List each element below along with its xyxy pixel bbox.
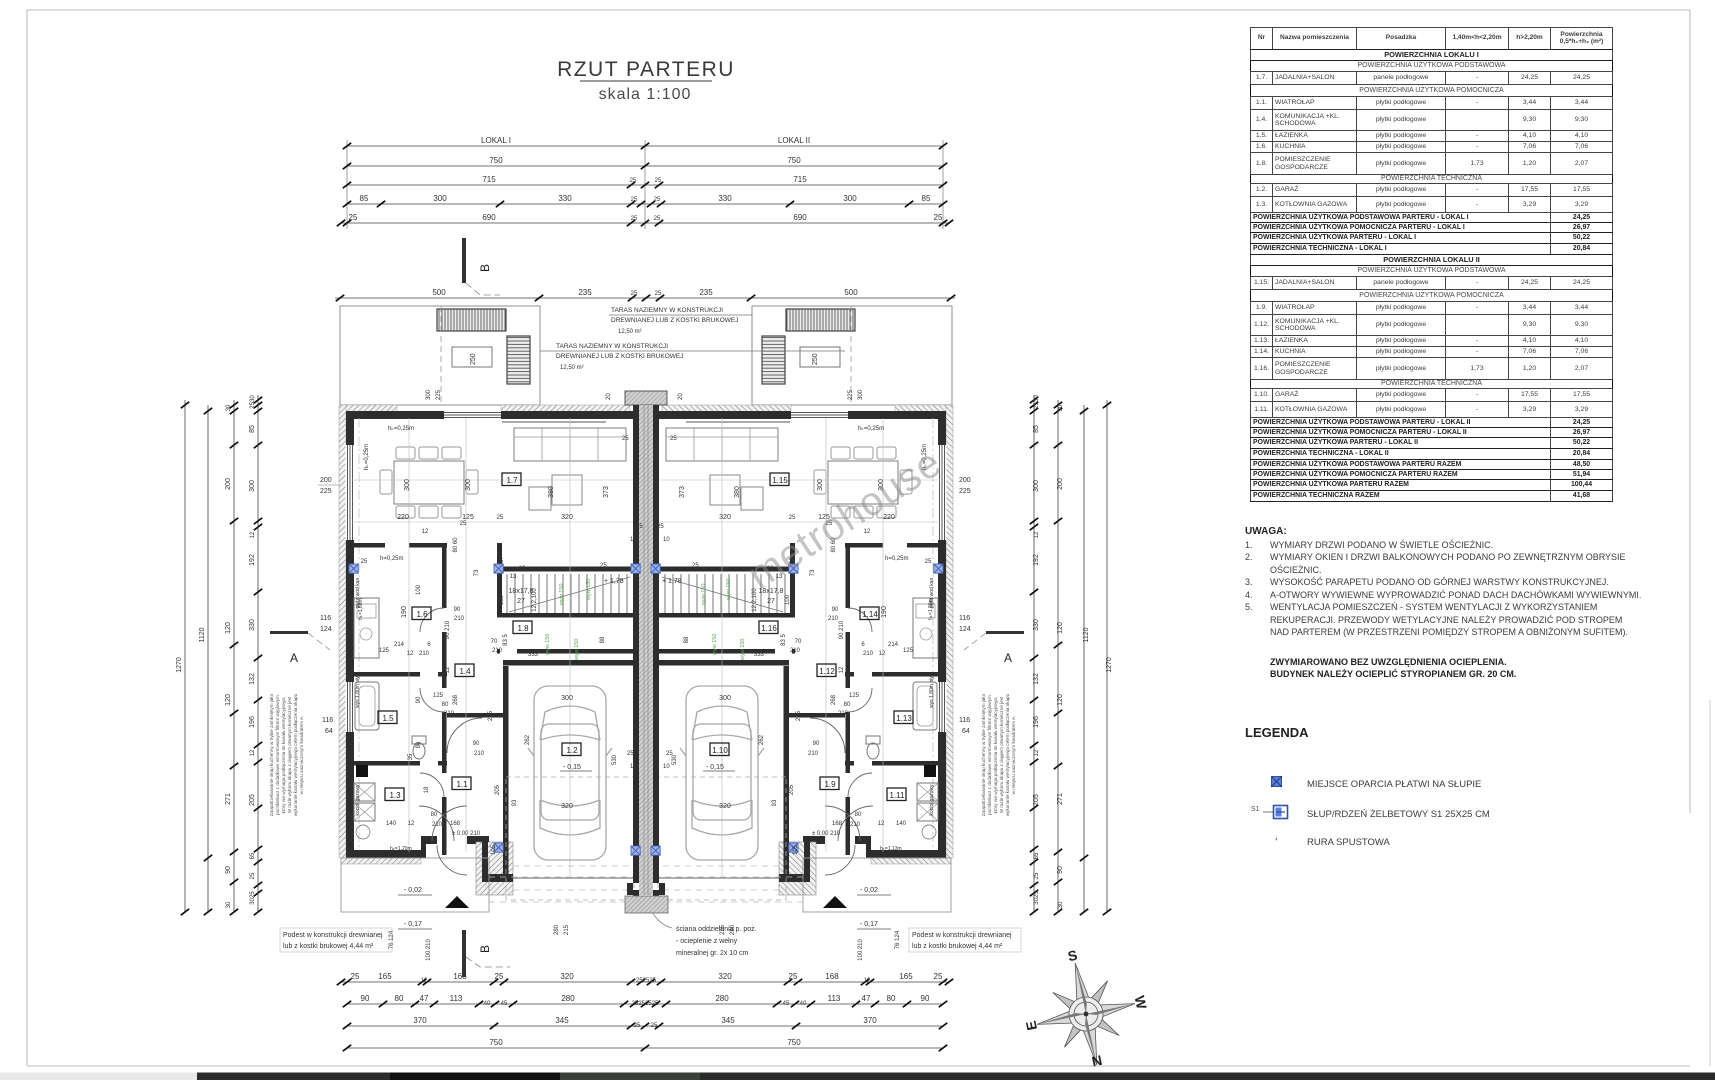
svg-text:27: 27 bbox=[767, 598, 775, 605]
svg-text:W: W bbox=[1132, 994, 1151, 1011]
svg-text:1.1: 1.1 bbox=[456, 780, 468, 789]
svg-text:1.6: 1.6 bbox=[416, 610, 428, 619]
svg-text:1.7: 1.7 bbox=[506, 476, 518, 485]
svg-text:205: 205 bbox=[495, 784, 501, 795]
svg-text:12: 12 bbox=[879, 651, 886, 657]
svg-text:RZUT PARTERU: RZUT PARTERU bbox=[557, 58, 735, 81]
svg-text:140: 140 bbox=[896, 821, 907, 827]
svg-text:25: 25 bbox=[497, 559, 504, 565]
svg-text:90: 90 bbox=[473, 741, 480, 747]
svg-text:25: 25 bbox=[497, 515, 504, 521]
svg-text:12: 12 bbox=[421, 978, 428, 984]
svg-text:380: 380 bbox=[548, 486, 555, 498]
svg-text:90: 90 bbox=[361, 994, 370, 1003]
svg-text:100: 100 bbox=[785, 594, 791, 605]
svg-text:40: 40 bbox=[800, 1001, 807, 1007]
svg-text:715: 715 bbox=[793, 175, 807, 184]
svg-text:12: 12 bbox=[408, 821, 415, 827]
svg-text:330: 330 bbox=[249, 619, 256, 631]
svg-text:w miejscu zaznaczonym kwadrate: w miejscu zaznaczonym kwadratem A. bbox=[1011, 716, 1016, 795]
svg-text:125: 125 bbox=[903, 648, 914, 654]
svg-text:80: 80 bbox=[395, 994, 404, 1003]
svg-text:25: 25 bbox=[460, 521, 467, 527]
svg-text:73: 73 bbox=[810, 569, 816, 576]
svg-text:210: 210 bbox=[828, 616, 839, 622]
svg-text:DREWNIANEJ LUB Z KOSTKI BRUKOW: DREWNIANEJ LUB Z KOSTKI BRUKOWEJ bbox=[556, 353, 684, 360]
svg-text:25: 25 bbox=[692, 563, 699, 569]
svg-text:+ 1,78: + 1,78 bbox=[604, 578, 624, 585]
svg-text:330: 330 bbox=[1033, 619, 1040, 631]
svg-text:300: 300 bbox=[817, 479, 824, 491]
svg-text:116: 116 bbox=[322, 717, 333, 724]
svg-text:90 210: 90 210 bbox=[445, 620, 451, 639]
svg-text:25: 25 bbox=[630, 178, 637, 184]
svg-text:116: 116 bbox=[959, 615, 970, 622]
svg-text:45: 45 bbox=[783, 1001, 790, 1007]
svg-text:85: 85 bbox=[360, 194, 369, 203]
svg-text:105: 105 bbox=[793, 844, 799, 855]
svg-text:25: 25 bbox=[651, 1023, 658, 1029]
svg-text:12 2,100: 12 2,100 bbox=[532, 588, 538, 612]
svg-text:47: 47 bbox=[862, 994, 871, 1003]
svg-text:który nie wymaga podłączenia d: który nie wymaga podłączenia do kanału w… bbox=[281, 697, 286, 814]
svg-text:210: 210 bbox=[850, 822, 861, 828]
svg-text:80: 80 bbox=[855, 812, 862, 818]
svg-text:750: 750 bbox=[787, 156, 801, 165]
svg-text:250: 250 bbox=[812, 353, 819, 365]
svg-text:90: 90 bbox=[454, 607, 461, 613]
svg-text:85: 85 bbox=[922, 194, 931, 203]
svg-text:330: 330 bbox=[558, 194, 572, 203]
svg-text:125: 125 bbox=[379, 648, 390, 654]
svg-text:90: 90 bbox=[416, 696, 422, 703]
svg-text:235: 235 bbox=[578, 288, 592, 297]
svg-text:wyw 150: wyw 150 bbox=[545, 634, 551, 656]
svg-text:12: 12 bbox=[1034, 749, 1040, 756]
svg-text:88: 88 bbox=[600, 636, 606, 643]
svg-text:45: 45 bbox=[501, 1001, 508, 1007]
svg-text:wys 1,80m płyta: wys 1,80m płyta bbox=[355, 672, 361, 708]
svg-text:47: 47 bbox=[420, 994, 429, 1003]
svg-text:3025: 3025 bbox=[250, 891, 256, 905]
svg-text:210: 210 bbox=[474, 751, 485, 757]
svg-text:6: 6 bbox=[861, 642, 865, 648]
svg-text:wyw 150: wyw 150 bbox=[726, 579, 732, 601]
svg-text:18: 18 bbox=[424, 786, 430, 793]
svg-text:100: 100 bbox=[416, 584, 422, 595]
svg-text:85: 85 bbox=[249, 425, 256, 433]
svg-text:370: 370 bbox=[863, 1016, 877, 1025]
svg-text:pochłaniacz z dodatkowo wmonto: pochłaniacz z dodatkowo wmontowanym filt… bbox=[987, 695, 992, 815]
svg-text:262: 262 bbox=[759, 734, 765, 745]
svg-text:30: 30 bbox=[1058, 404, 1064, 411]
svg-text:1.16: 1.16 bbox=[761, 624, 777, 633]
svg-text:10: 10 bbox=[630, 537, 637, 543]
svg-text:210: 210 bbox=[838, 711, 849, 717]
svg-text:80 60: 80 60 bbox=[453, 537, 459, 553]
svg-text:40: 40 bbox=[484, 1001, 491, 1007]
svg-text:380: 380 bbox=[734, 486, 741, 498]
svg-text:27: 27 bbox=[517, 598, 525, 605]
svg-text:300: 300 bbox=[426, 389, 432, 400]
svg-text:25: 25 bbox=[634, 1023, 641, 1029]
svg-text:225: 225 bbox=[959, 488, 971, 495]
svg-text:190: 190 bbox=[401, 606, 408, 618]
svg-text:- 0,02: - 0,02 bbox=[404, 887, 422, 894]
svg-text:1.3: 1.3 bbox=[389, 791, 401, 800]
svg-text:65: 65 bbox=[250, 852, 256, 859]
svg-text:120: 120 bbox=[1057, 622, 1064, 634]
svg-text:214: 214 bbox=[394, 642, 405, 648]
svg-text:220: 220 bbox=[397, 514, 409, 521]
svg-text:B: B bbox=[478, 945, 492, 953]
svg-text:345: 345 bbox=[555, 1016, 569, 1025]
svg-text:E: E bbox=[1022, 1019, 1040, 1031]
svg-text:± 0,00 210: ± 0,00 210 bbox=[812, 831, 841, 837]
svg-text:80: 80 bbox=[431, 812, 438, 818]
svg-text:25: 25 bbox=[666, 751, 673, 757]
svg-text:64: 64 bbox=[962, 728, 970, 735]
svg-text:+ 1,78: + 1,78 bbox=[662, 578, 682, 585]
svg-text:70: 70 bbox=[795, 639, 802, 645]
svg-text:500: 500 bbox=[432, 288, 446, 297]
svg-text:25: 25 bbox=[657, 524, 664, 530]
svg-text:100: 100 bbox=[499, 594, 505, 605]
svg-text:690: 690 bbox=[793, 213, 807, 222]
svg-text:93: 93 bbox=[772, 799, 778, 806]
svg-text:2530: 2530 bbox=[1034, 395, 1040, 409]
svg-text:Podest w konstrukcji drewniane: Podest w konstrukcji drewnianej bbox=[912, 932, 1012, 939]
svg-text:132: 132 bbox=[1033, 673, 1040, 685]
svg-text:20: 20 bbox=[678, 393, 684, 400]
svg-text:214: 214 bbox=[888, 642, 899, 648]
svg-text:- ocieplenie z wełny: - ocieplenie z wełny bbox=[676, 938, 738, 945]
svg-text:13: 13 bbox=[510, 574, 517, 580]
svg-text:1.13: 1.13 bbox=[896, 714, 912, 723]
svg-text:70: 70 bbox=[491, 639, 498, 645]
svg-text:hₖ=1,13m: hₖ=1,13m bbox=[880, 846, 902, 852]
svg-text:25: 25 bbox=[655, 178, 662, 184]
svg-text:płyta wod kan: płyta wod kan bbox=[929, 577, 935, 608]
svg-text:64: 64 bbox=[325, 728, 333, 735]
svg-text:200: 200 bbox=[225, 478, 232, 490]
svg-text:113: 113 bbox=[450, 994, 463, 1003]
svg-text:25: 25 bbox=[789, 515, 796, 521]
svg-text:N: N bbox=[1090, 1052, 1103, 1070]
svg-text:280: 280 bbox=[561, 994, 575, 1003]
svg-text:lub z kostki brukowej 4,44 m²: lub z kostki brukowej 4,44 m² bbox=[283, 943, 374, 950]
svg-text:hₖ=0,25m: hₖ=0,25m bbox=[364, 444, 370, 470]
svg-text:100 210: 100 210 bbox=[426, 939, 432, 961]
svg-text:12 2,100: 12 2,100 bbox=[752, 588, 758, 612]
svg-text:83 5: 83 5 bbox=[503, 634, 509, 646]
svg-text:530: 530 bbox=[672, 754, 678, 765]
svg-text:25: 25 bbox=[636, 524, 643, 530]
svg-text:73: 73 bbox=[474, 569, 480, 576]
svg-text:320: 320 bbox=[561, 514, 573, 521]
svg-text:płyta wod kan: płyta wod kan bbox=[355, 577, 361, 608]
svg-text:76 124: 76 124 bbox=[895, 930, 901, 949]
svg-text:373: 373 bbox=[679, 486, 686, 498]
svg-text:320: 320 bbox=[719, 514, 731, 521]
svg-text:90: 90 bbox=[832, 607, 839, 613]
svg-text:25: 25 bbox=[934, 972, 943, 981]
svg-text:wykonanie kanału wentylacyjneg: wykonanie kanału wentylacyjnego celem po… bbox=[293, 693, 298, 816]
svg-text:120: 120 bbox=[225, 622, 232, 634]
svg-text:1.5: 1.5 bbox=[382, 714, 394, 723]
svg-text:1.8: 1.8 bbox=[517, 624, 529, 633]
svg-text:205: 205 bbox=[796, 710, 802, 721]
svg-text:6: 6 bbox=[427, 642, 431, 648]
svg-text:ściana oddzielenia p. poż.: ściana oddzielenia p. poż. bbox=[676, 926, 757, 933]
svg-text:30: 30 bbox=[226, 901, 232, 908]
svg-text:120: 120 bbox=[225, 694, 232, 706]
svg-text:1270: 1270 bbox=[1106, 657, 1113, 673]
svg-text:333: 333 bbox=[528, 652, 539, 658]
svg-text:DREWNIANEJ LUB Z KOSTKI BRUKOW: DREWNIANEJ LUB Z KOSTKI BRUKOWEJ bbox=[611, 317, 739, 324]
svg-text:90: 90 bbox=[225, 866, 232, 874]
svg-text:25: 25 bbox=[495, 972, 504, 981]
svg-text:wyw 150: wyw 150 bbox=[701, 584, 707, 606]
svg-text:1270: 1270 bbox=[176, 657, 183, 673]
svg-text:200: 200 bbox=[959, 477, 971, 484]
svg-text:300: 300 bbox=[561, 695, 573, 702]
svg-text:210: 210 bbox=[444, 711, 455, 717]
svg-text:Zaopatrzebowanie okap kuchenny: Zaopatrzebowanie okap kuchenny w trybie … bbox=[269, 693, 274, 816]
svg-text:LOKAL I: LOKAL I bbox=[481, 136, 511, 145]
svg-text:215: 215 bbox=[564, 924, 570, 935]
svg-text:1120: 1120 bbox=[1083, 627, 1090, 642]
svg-text:- 0,17: - 0,17 bbox=[860, 921, 878, 928]
svg-text:pochłaniacz z dodatkowo wmonto: pochłaniacz z dodatkowo wmontowanym filt… bbox=[275, 695, 280, 815]
svg-text:Podest w konstrukcji drewniane: Podest w konstrukcji drewnianej bbox=[283, 932, 383, 939]
svg-text:300: 300 bbox=[465, 479, 472, 491]
svg-text:300: 300 bbox=[249, 480, 256, 492]
svg-text:12: 12 bbox=[250, 749, 256, 756]
svg-text:12: 12 bbox=[878, 821, 885, 827]
svg-text:wyw 150: wyw 150 bbox=[740, 639, 746, 661]
svg-text:530: 530 bbox=[612, 754, 618, 765]
svg-text:3025: 3025 bbox=[1034, 891, 1040, 905]
svg-text:TARAS NAZIEMNY W KONSTRUKCJI: TARAS NAZIEMNY W KONSTRUKCJI bbox=[556, 343, 668, 350]
svg-text:25: 25 bbox=[925, 559, 932, 565]
svg-text:A: A bbox=[290, 651, 298, 665]
svg-text:200: 200 bbox=[1057, 478, 1064, 490]
svg-text:168: 168 bbox=[453, 972, 467, 981]
svg-text:210: 210 bbox=[419, 651, 430, 657]
svg-text:25252525: 25252525 bbox=[632, 1001, 659, 1007]
svg-text:18x17,8: 18x17,8 bbox=[509, 588, 534, 595]
svg-text:25: 25 bbox=[631, 216, 638, 222]
svg-text:25: 25 bbox=[627, 751, 634, 757]
svg-text:10: 10 bbox=[663, 764, 670, 770]
svg-text:300: 300 bbox=[433, 194, 447, 203]
svg-text:165: 165 bbox=[899, 972, 913, 981]
svg-text:12: 12 bbox=[1034, 531, 1040, 538]
svg-text:12: 12 bbox=[839, 666, 845, 673]
svg-text:80: 80 bbox=[416, 741, 422, 748]
svg-text:168: 168 bbox=[450, 821, 461, 827]
svg-text:196: 196 bbox=[1033, 716, 1040, 728]
svg-text:165: 165 bbox=[378, 972, 392, 981]
svg-text:25: 25 bbox=[600, 563, 607, 569]
svg-text:h=0,25m: h=0,25m bbox=[885, 556, 909, 562]
svg-text:90: 90 bbox=[813, 741, 820, 747]
svg-text:mineralnej gr. 2x 10 cm: mineralnej gr. 2x 10 cm bbox=[676, 950, 749, 957]
svg-text:116: 116 bbox=[320, 615, 331, 622]
svg-text:268: 268 bbox=[453, 694, 459, 705]
svg-text:S: S bbox=[1066, 947, 1078, 965]
svg-text:25: 25 bbox=[622, 436, 629, 442]
svg-text:113: 113 bbox=[828, 994, 841, 1003]
svg-text:25: 25 bbox=[631, 291, 638, 297]
svg-text:Zaopatrzebowanie okap kuchenny: Zaopatrzebowanie okap kuchenny w trybie … bbox=[981, 693, 986, 816]
svg-text:210: 210 bbox=[790, 648, 801, 654]
svg-text:25: 25 bbox=[351, 972, 360, 981]
svg-text:90: 90 bbox=[921, 994, 930, 1003]
svg-text:12: 12 bbox=[864, 978, 871, 984]
svg-text:± 0,00 210: ± 0,00 210 bbox=[452, 831, 481, 837]
svg-text:192: 192 bbox=[249, 554, 256, 566]
svg-text:30: 30 bbox=[226, 404, 232, 411]
svg-text:320: 320 bbox=[719, 803, 731, 810]
svg-text:metrohouse: metrohouse bbox=[740, 440, 950, 597]
svg-text:skala 1:100: skala 1:100 bbox=[599, 86, 692, 103]
svg-text:1.9: 1.9 bbox=[824, 780, 836, 789]
svg-text:168: 168 bbox=[825, 972, 839, 981]
svg-text:25: 25 bbox=[654, 216, 661, 222]
svg-text:205: 205 bbox=[249, 794, 256, 806]
svg-text:280: 280 bbox=[715, 994, 729, 1003]
svg-text:200: 200 bbox=[320, 477, 332, 484]
svg-text:wyw 150: wyw 150 bbox=[559, 584, 565, 606]
svg-text:12: 12 bbox=[250, 531, 256, 538]
svg-text:205: 205 bbox=[1033, 794, 1040, 806]
svg-text:300: 300 bbox=[404, 479, 411, 491]
svg-text:12,50 m²: 12,50 m² bbox=[560, 365, 584, 371]
svg-text:20: 20 bbox=[606, 393, 612, 400]
svg-text:10: 10 bbox=[630, 764, 637, 770]
svg-text:12: 12 bbox=[422, 529, 429, 535]
svg-text:lub z kostki brukowej 4,44 m²: lub z kostki brukowej 4,44 m² bbox=[912, 943, 1003, 950]
svg-text:A: A bbox=[1004, 651, 1012, 665]
svg-text:715: 715 bbox=[482, 175, 496, 184]
svg-text:124: 124 bbox=[959, 626, 971, 633]
svg-text:116: 116 bbox=[959, 717, 970, 724]
svg-text:- 0,17: - 0,17 bbox=[404, 921, 422, 928]
svg-text:140: 140 bbox=[386, 821, 397, 827]
svg-text:1.12: 1.12 bbox=[819, 667, 835, 676]
svg-text:225: 225 bbox=[848, 389, 854, 400]
svg-text:wykonanie kanału wentylacyjneg: wykonanie kanału wentylacyjnego celem po… bbox=[1005, 693, 1010, 816]
svg-text:1.2: 1.2 bbox=[566, 746, 578, 755]
svg-text:wyw 150: wyw 150 bbox=[712, 634, 718, 656]
svg-text:25: 25 bbox=[361, 559, 368, 565]
svg-text:wys 1,80m płyta: wys 1,80m płyta bbox=[929, 672, 935, 708]
svg-text:125: 125 bbox=[849, 693, 860, 699]
svg-text:25: 25 bbox=[655, 291, 662, 297]
svg-text:205: 205 bbox=[488, 710, 494, 721]
svg-text:125: 125 bbox=[433, 693, 444, 699]
svg-text:750: 750 bbox=[489, 1038, 503, 1047]
svg-text:1.14: 1.14 bbox=[862, 610, 878, 619]
svg-text:25: 25 bbox=[934, 213, 943, 222]
svg-text:1.15: 1.15 bbox=[772, 476, 788, 485]
svg-text:320: 320 bbox=[718, 972, 732, 981]
svg-text:300: 300 bbox=[858, 389, 864, 400]
svg-text:kocioł gazowy: kocioł gazowy bbox=[929, 784, 935, 816]
svg-text:373: 373 bbox=[603, 486, 610, 498]
svg-text:hₖ=1,20m: hₖ=1,20m bbox=[390, 846, 412, 852]
svg-text:który nie wymaga podłączenia d: który nie wymaga podłączenia do kanału w… bbox=[993, 697, 998, 814]
svg-text:93: 93 bbox=[512, 799, 518, 806]
svg-text:124: 124 bbox=[320, 626, 332, 633]
svg-text:210: 210 bbox=[863, 651, 874, 657]
svg-text:- 0,15: - 0,15 bbox=[563, 764, 581, 771]
svg-text:1.10: 1.10 bbox=[712, 746, 728, 755]
svg-text:12: 12 bbox=[407, 651, 414, 657]
svg-text:330: 330 bbox=[718, 194, 732, 203]
svg-text:205: 205 bbox=[789, 784, 795, 795]
svg-text:80: 80 bbox=[844, 702, 851, 708]
svg-text:- 0,15: - 0,15 bbox=[706, 764, 724, 771]
svg-text:225: 225 bbox=[320, 488, 332, 495]
svg-text:132: 132 bbox=[249, 673, 256, 685]
svg-text:25: 25 bbox=[789, 972, 798, 981]
svg-text:W razie wyboru okapu z ciągiem: W razie wyboru okapu z ciągiem otwartym … bbox=[287, 696, 292, 813]
svg-text:1.11: 1.11 bbox=[890, 791, 906, 800]
svg-text:90: 90 bbox=[1057, 866, 1064, 874]
svg-text:252525: 252525 bbox=[636, 978, 657, 984]
svg-text:271: 271 bbox=[1057, 793, 1064, 805]
svg-text:65: 65 bbox=[1034, 852, 1040, 859]
svg-text:250: 250 bbox=[470, 353, 477, 365]
svg-text:1.4: 1.4 bbox=[459, 667, 471, 676]
svg-text:320: 320 bbox=[561, 803, 573, 810]
svg-text:190: 190 bbox=[881, 606, 888, 618]
svg-text:300: 300 bbox=[719, 695, 731, 702]
svg-text:300: 300 bbox=[843, 194, 857, 203]
svg-text:100 210: 100 210 bbox=[858, 939, 864, 961]
svg-text:h=0,25m: h=0,25m bbox=[380, 556, 404, 562]
svg-text:90 210: 90 210 bbox=[839, 620, 845, 639]
svg-text:210: 210 bbox=[492, 648, 503, 654]
svg-text:210: 210 bbox=[454, 616, 465, 622]
svg-text:500: 500 bbox=[844, 288, 858, 297]
svg-text:210: 210 bbox=[808, 751, 819, 757]
svg-text:370: 370 bbox=[413, 1016, 427, 1025]
svg-text:12: 12 bbox=[519, 566, 526, 572]
svg-text:750: 750 bbox=[787, 1038, 801, 1047]
svg-text:80: 80 bbox=[442, 702, 449, 708]
svg-text:210: 210 bbox=[432, 822, 443, 828]
svg-text:wyw 150: wyw 150 bbox=[586, 579, 592, 601]
svg-text:85: 85 bbox=[1033, 425, 1040, 433]
svg-text:hₖ=0,25m: hₖ=0,25m bbox=[858, 426, 884, 432]
svg-text:10: 10 bbox=[663, 537, 670, 543]
svg-text:333: 333 bbox=[754, 652, 765, 658]
svg-text:196: 196 bbox=[249, 716, 256, 728]
svg-text:750: 750 bbox=[489, 156, 503, 165]
svg-text:80: 80 bbox=[887, 994, 896, 1003]
svg-text:25: 25 bbox=[654, 197, 661, 203]
svg-text:105: 105 bbox=[491, 844, 497, 855]
svg-text:225: 225 bbox=[436, 389, 442, 400]
svg-text:25: 25 bbox=[250, 872, 256, 879]
svg-text:12,50 m²: 12,50 m² bbox=[618, 329, 642, 335]
svg-text:268: 268 bbox=[831, 694, 837, 705]
svg-text:hₖ=0,25m: hₖ=0,25m bbox=[388, 426, 414, 432]
